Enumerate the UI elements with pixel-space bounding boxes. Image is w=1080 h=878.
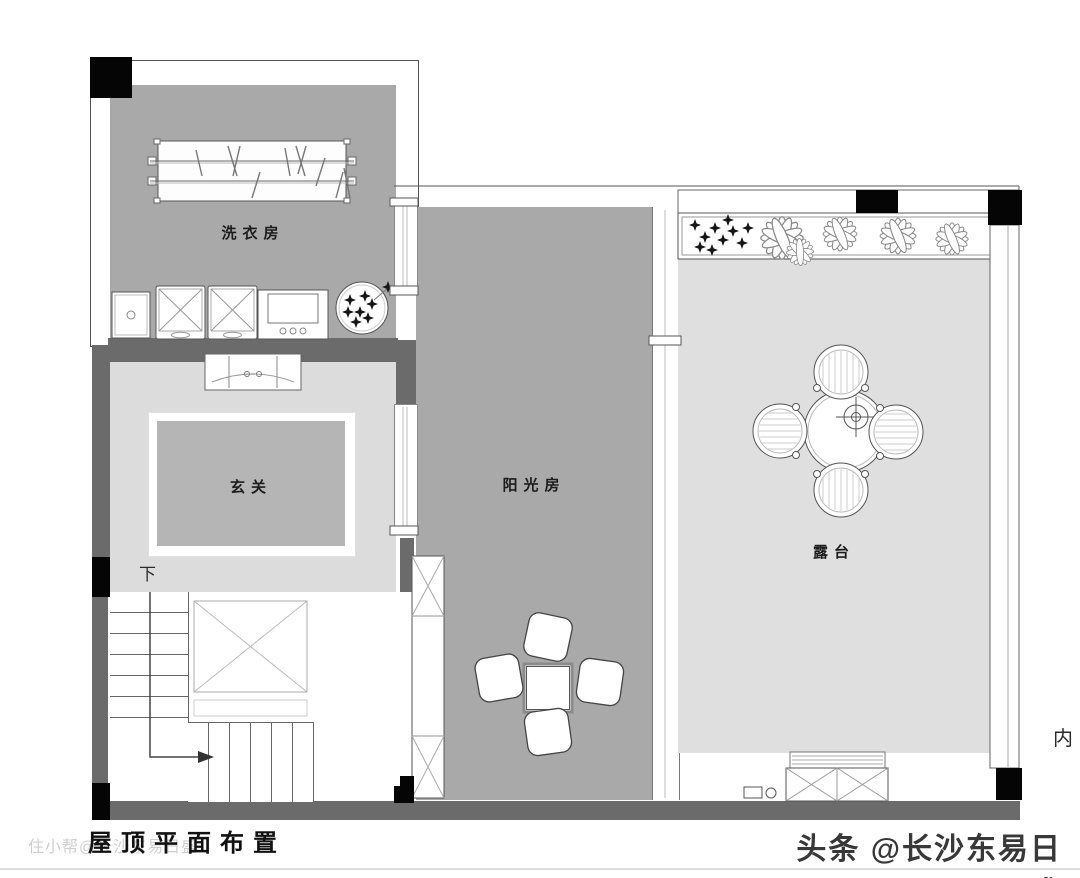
terrace-top-band <box>678 190 1019 213</box>
laundry-basin-unit <box>258 290 328 339</box>
stair-void <box>194 601 307 716</box>
laundry-sink <box>112 292 150 338</box>
washing-machine-2 <box>208 286 257 339</box>
laundry-room-label: 洗衣房 <box>110 222 396 243</box>
washing-machine-1 <box>156 286 205 339</box>
terrace-label: 露台 <box>678 541 990 562</box>
sunroom-label: 阳光房 <box>416 474 652 495</box>
drying-rack <box>148 139 356 203</box>
watermark-toutiao: 头条 @长沙东易日盛 <box>770 824 1062 878</box>
roof-floor-plan: 洗衣房 玄关 阳光房 露台 下 内 住小帮@长沙东易日盛 屋顶平面布置 头条 @… <box>0 0 1080 878</box>
sunroom-shaft-column <box>412 556 444 798</box>
right-edge-label: 内 <box>1053 722 1073 751</box>
sunroom-tea-table <box>524 664 572 712</box>
terrace-right-wall <box>990 225 1019 768</box>
drawing-title: 屋顶平面布置 <box>88 823 286 858</box>
ac-outdoor-unit <box>786 752 888 801</box>
foyer-bench <box>205 354 301 390</box>
stair-down-label: 下 <box>139 560 156 585</box>
floor-drain <box>744 787 776 798</box>
foyer-label: 玄关 <box>148 476 354 497</box>
laundry-plant-pot <box>336 281 394 334</box>
plan-lineart <box>0 0 1080 878</box>
